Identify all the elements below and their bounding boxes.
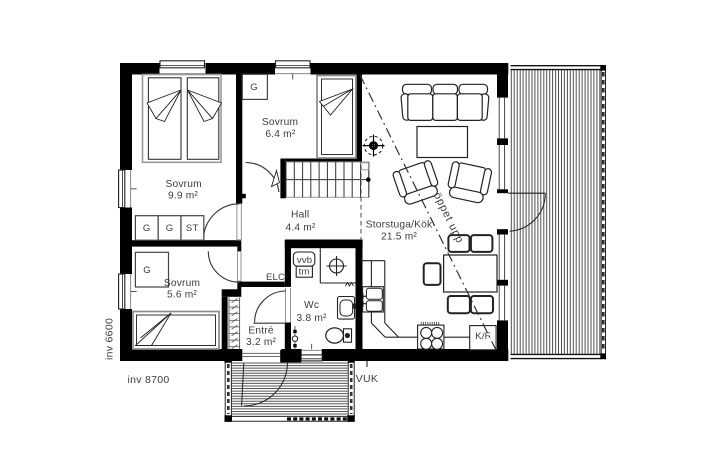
svg-text:Hall: Hall bbox=[291, 210, 309, 221]
svg-text:3.8 m²: 3.8 m² bbox=[297, 313, 327, 324]
svg-text:Storstuga/Kök: Storstuga/Kök bbox=[366, 220, 433, 231]
svg-text:5.6 m²: 5.6 m² bbox=[167, 290, 197, 301]
svg-text:Wc: Wc bbox=[304, 300, 319, 311]
svg-text:6.4 m²: 6.4 m² bbox=[265, 129, 295, 140]
svg-text:Sovrum: Sovrum bbox=[262, 117, 298, 128]
svg-text:K/F: K/F bbox=[475, 331, 490, 342]
svg-text:inv 8700: inv 8700 bbox=[127, 374, 169, 386]
svg-text:tm: tm bbox=[299, 267, 310, 278]
svg-text:VUK: VUK bbox=[356, 373, 379, 385]
svg-text:G: G bbox=[166, 223, 174, 234]
svg-text:inv 6600: inv 6600 bbox=[104, 318, 116, 360]
svg-text:4.4 m²: 4.4 m² bbox=[285, 223, 315, 234]
svg-text:9.9 m²: 9.9 m² bbox=[168, 190, 198, 201]
svg-text:ELC: ELC bbox=[266, 272, 285, 283]
svg-text:G: G bbox=[143, 265, 151, 276]
svg-text:Entré: Entré bbox=[248, 325, 273, 336]
svg-text:Sovrum: Sovrum bbox=[166, 179, 202, 190]
svg-text:vvb: vvb bbox=[297, 255, 312, 266]
svg-text:G: G bbox=[250, 82, 258, 93]
svg-text:ST: ST bbox=[186, 223, 199, 234]
svg-text:3.2 m²: 3.2 m² bbox=[246, 337, 276, 348]
svg-text:21.5 m²: 21.5 m² bbox=[381, 232, 417, 243]
svg-text:G: G bbox=[143, 223, 151, 234]
svg-text:Sovrum: Sovrum bbox=[164, 278, 200, 289]
